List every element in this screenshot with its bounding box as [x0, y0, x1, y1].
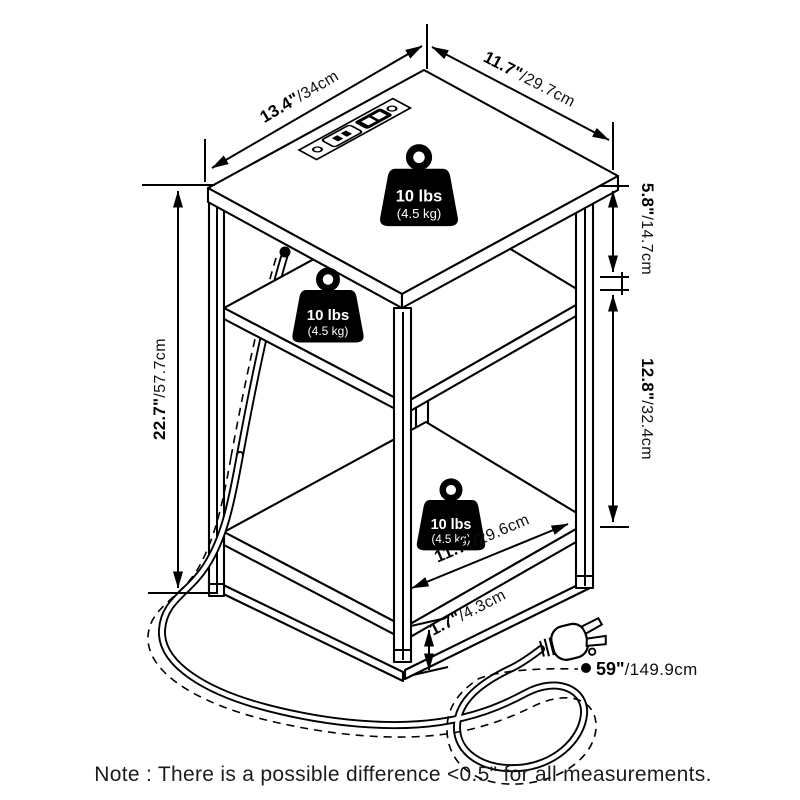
- cord-length-label: 59"/149.9cm: [596, 659, 698, 679]
- cord-anchor-dot: [280, 247, 291, 258]
- diagram-page: 10 lbs (4.5 kg) 10 lbs (4.5 kg) 10 lbs (…: [0, 0, 800, 800]
- weight-lbs-label: 10 lbs: [396, 188, 442, 206]
- weight-kg-label: (4.5 kg): [397, 206, 441, 221]
- leg-front: [394, 308, 411, 662]
- leg-right: [576, 203, 593, 588]
- weight-lbs-label: 10 lbs: [307, 307, 350, 324]
- weight-kg-label: (4.5 kg): [308, 324, 349, 338]
- dimension-cord-length: 59"/149.9cm: [581, 659, 698, 679]
- leader-dot: [581, 663, 591, 673]
- weight-lbs-label: 10 lbs: [431, 517, 472, 533]
- top-to-shelf-label: 5.8"/14.7cm: [638, 183, 657, 275]
- furniture-dimension-diagram: 10 lbs (4.5 kg) 10 lbs (4.5 kg) 10 lbs (…: [0, 0, 800, 800]
- overall-height-label: 22.7"/57.7cm: [150, 338, 169, 440]
- shelf-to-shelf-label: 12.8"/32.4cm: [638, 358, 657, 460]
- note-text: Note : There is a possible difference <0…: [94, 763, 711, 786]
